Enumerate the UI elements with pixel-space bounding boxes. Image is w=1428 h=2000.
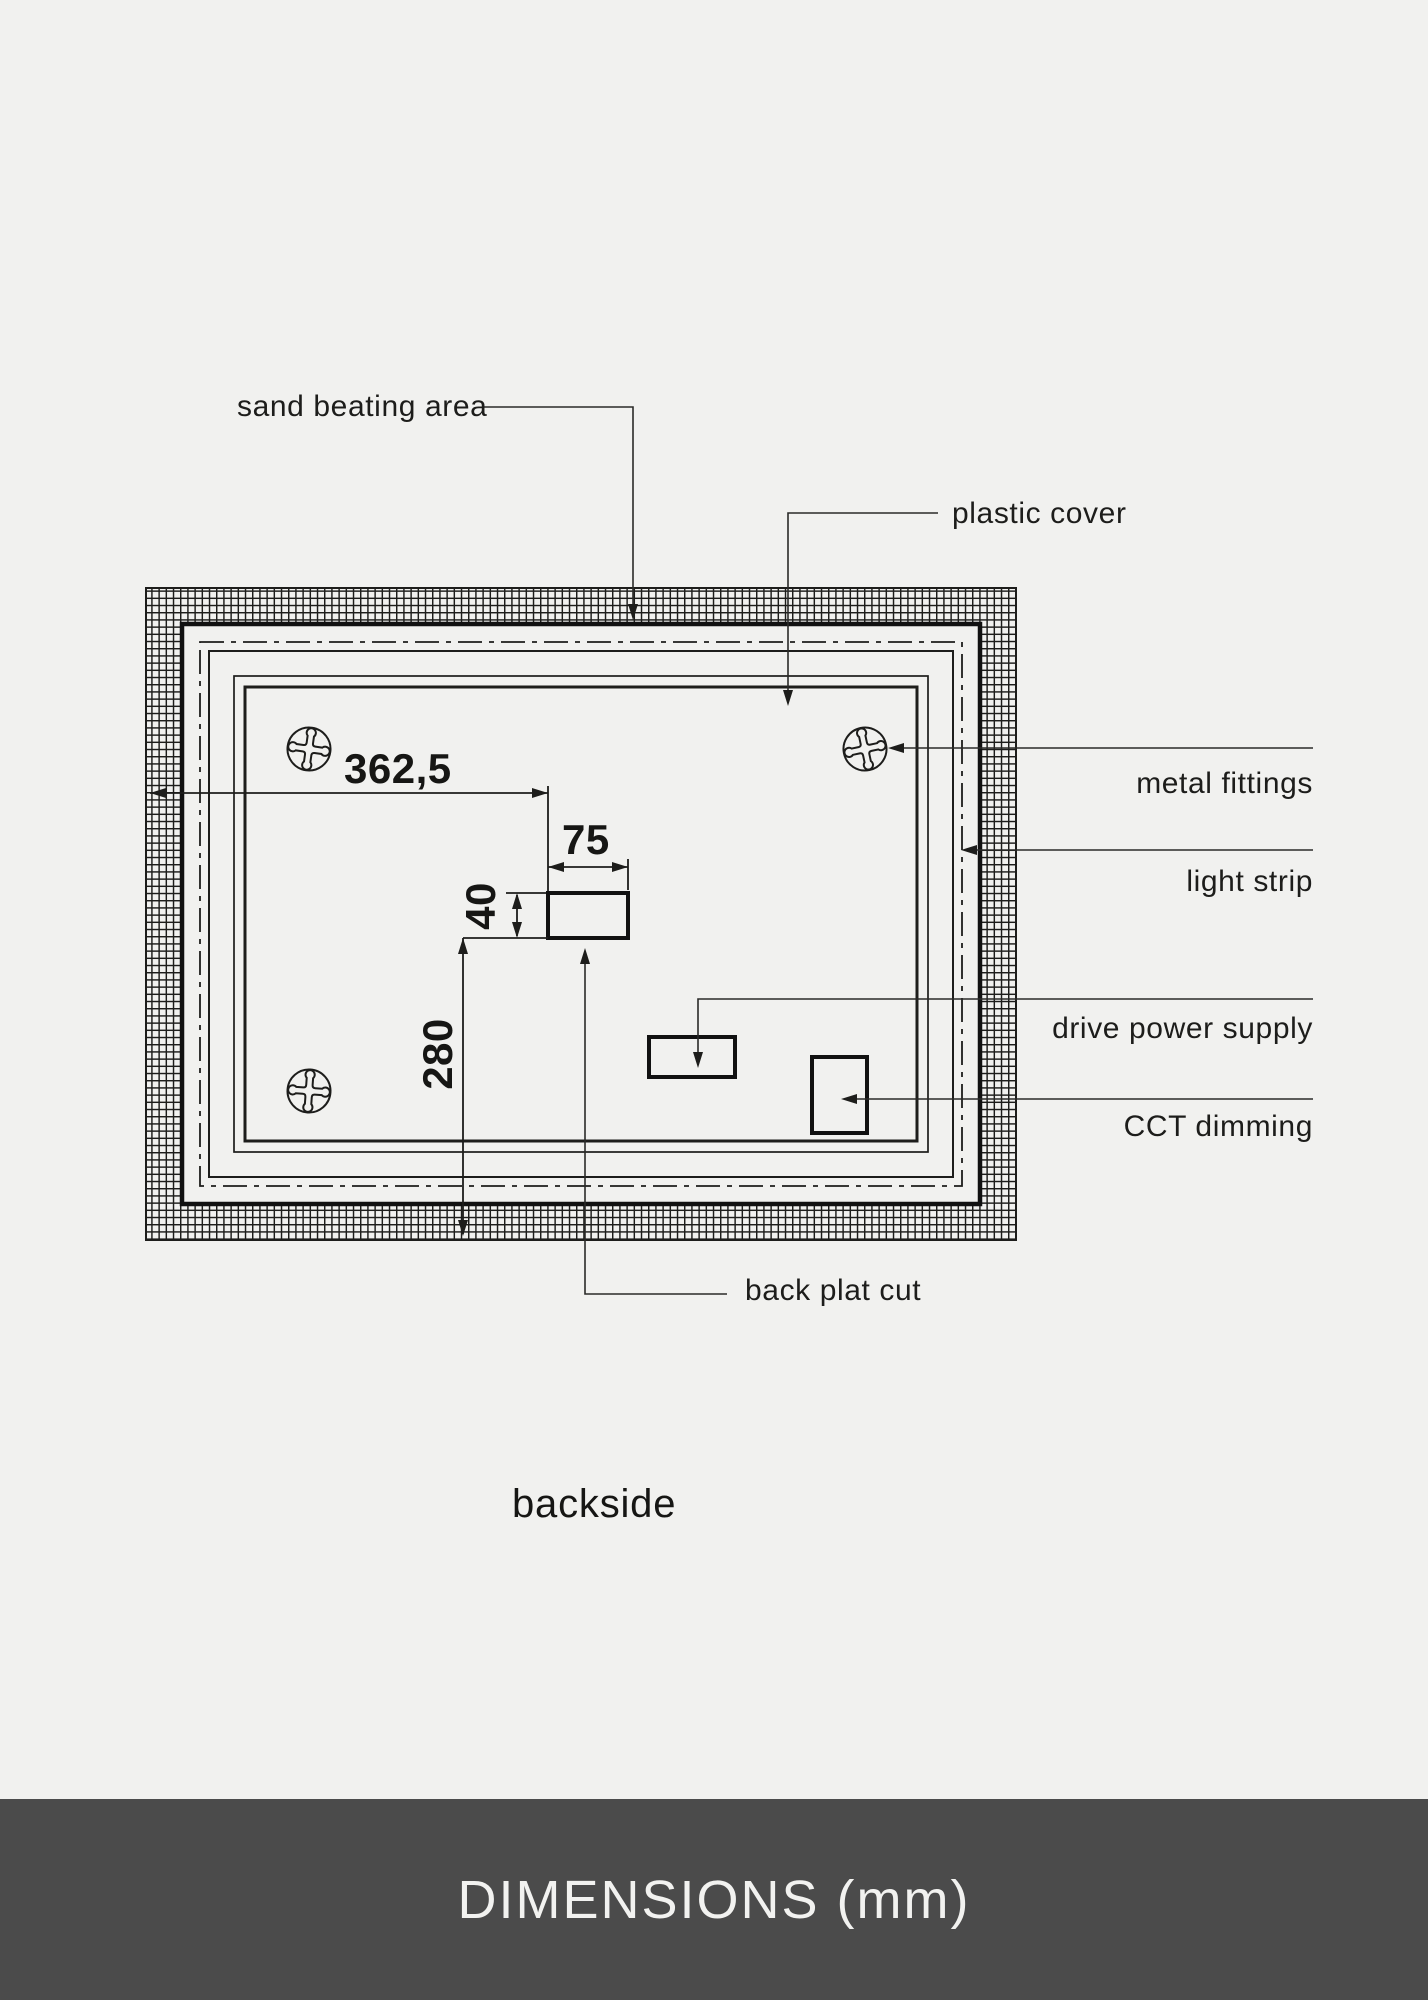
dimension-75: 75 xyxy=(562,816,610,864)
view-caption: backside xyxy=(512,1482,676,1527)
label-drive-power-supply: drive power supply xyxy=(1052,1012,1313,1046)
label-cct-dimming: CCT dimming xyxy=(1124,1110,1313,1144)
drive-power-supply-box xyxy=(649,1037,735,1077)
label-sand-beating-area: sand beating area xyxy=(237,390,487,424)
dimension-362-5: 362,5 xyxy=(344,745,452,793)
technical-drawing xyxy=(0,0,1428,2000)
footer-bar: DIMENSIONS (mm) xyxy=(0,1799,1428,2000)
dimension-280: 280 xyxy=(396,1012,480,1096)
footer-title: DIMENSIONS (mm) xyxy=(458,1869,971,1931)
label-back-plat-cut: back plat cut xyxy=(745,1274,921,1308)
back-plat-cut-box xyxy=(548,893,628,938)
label-plastic-cover: plastic cover xyxy=(952,497,1127,531)
label-light-strip: light strip xyxy=(1186,865,1313,899)
cct-dimming-box xyxy=(812,1057,867,1133)
dimension-sheet: sand beating area plastic cover metal fi… xyxy=(0,0,1428,2000)
dimension-40: 40 xyxy=(439,864,523,948)
label-metal-fittings: metal fittings xyxy=(1136,767,1313,801)
